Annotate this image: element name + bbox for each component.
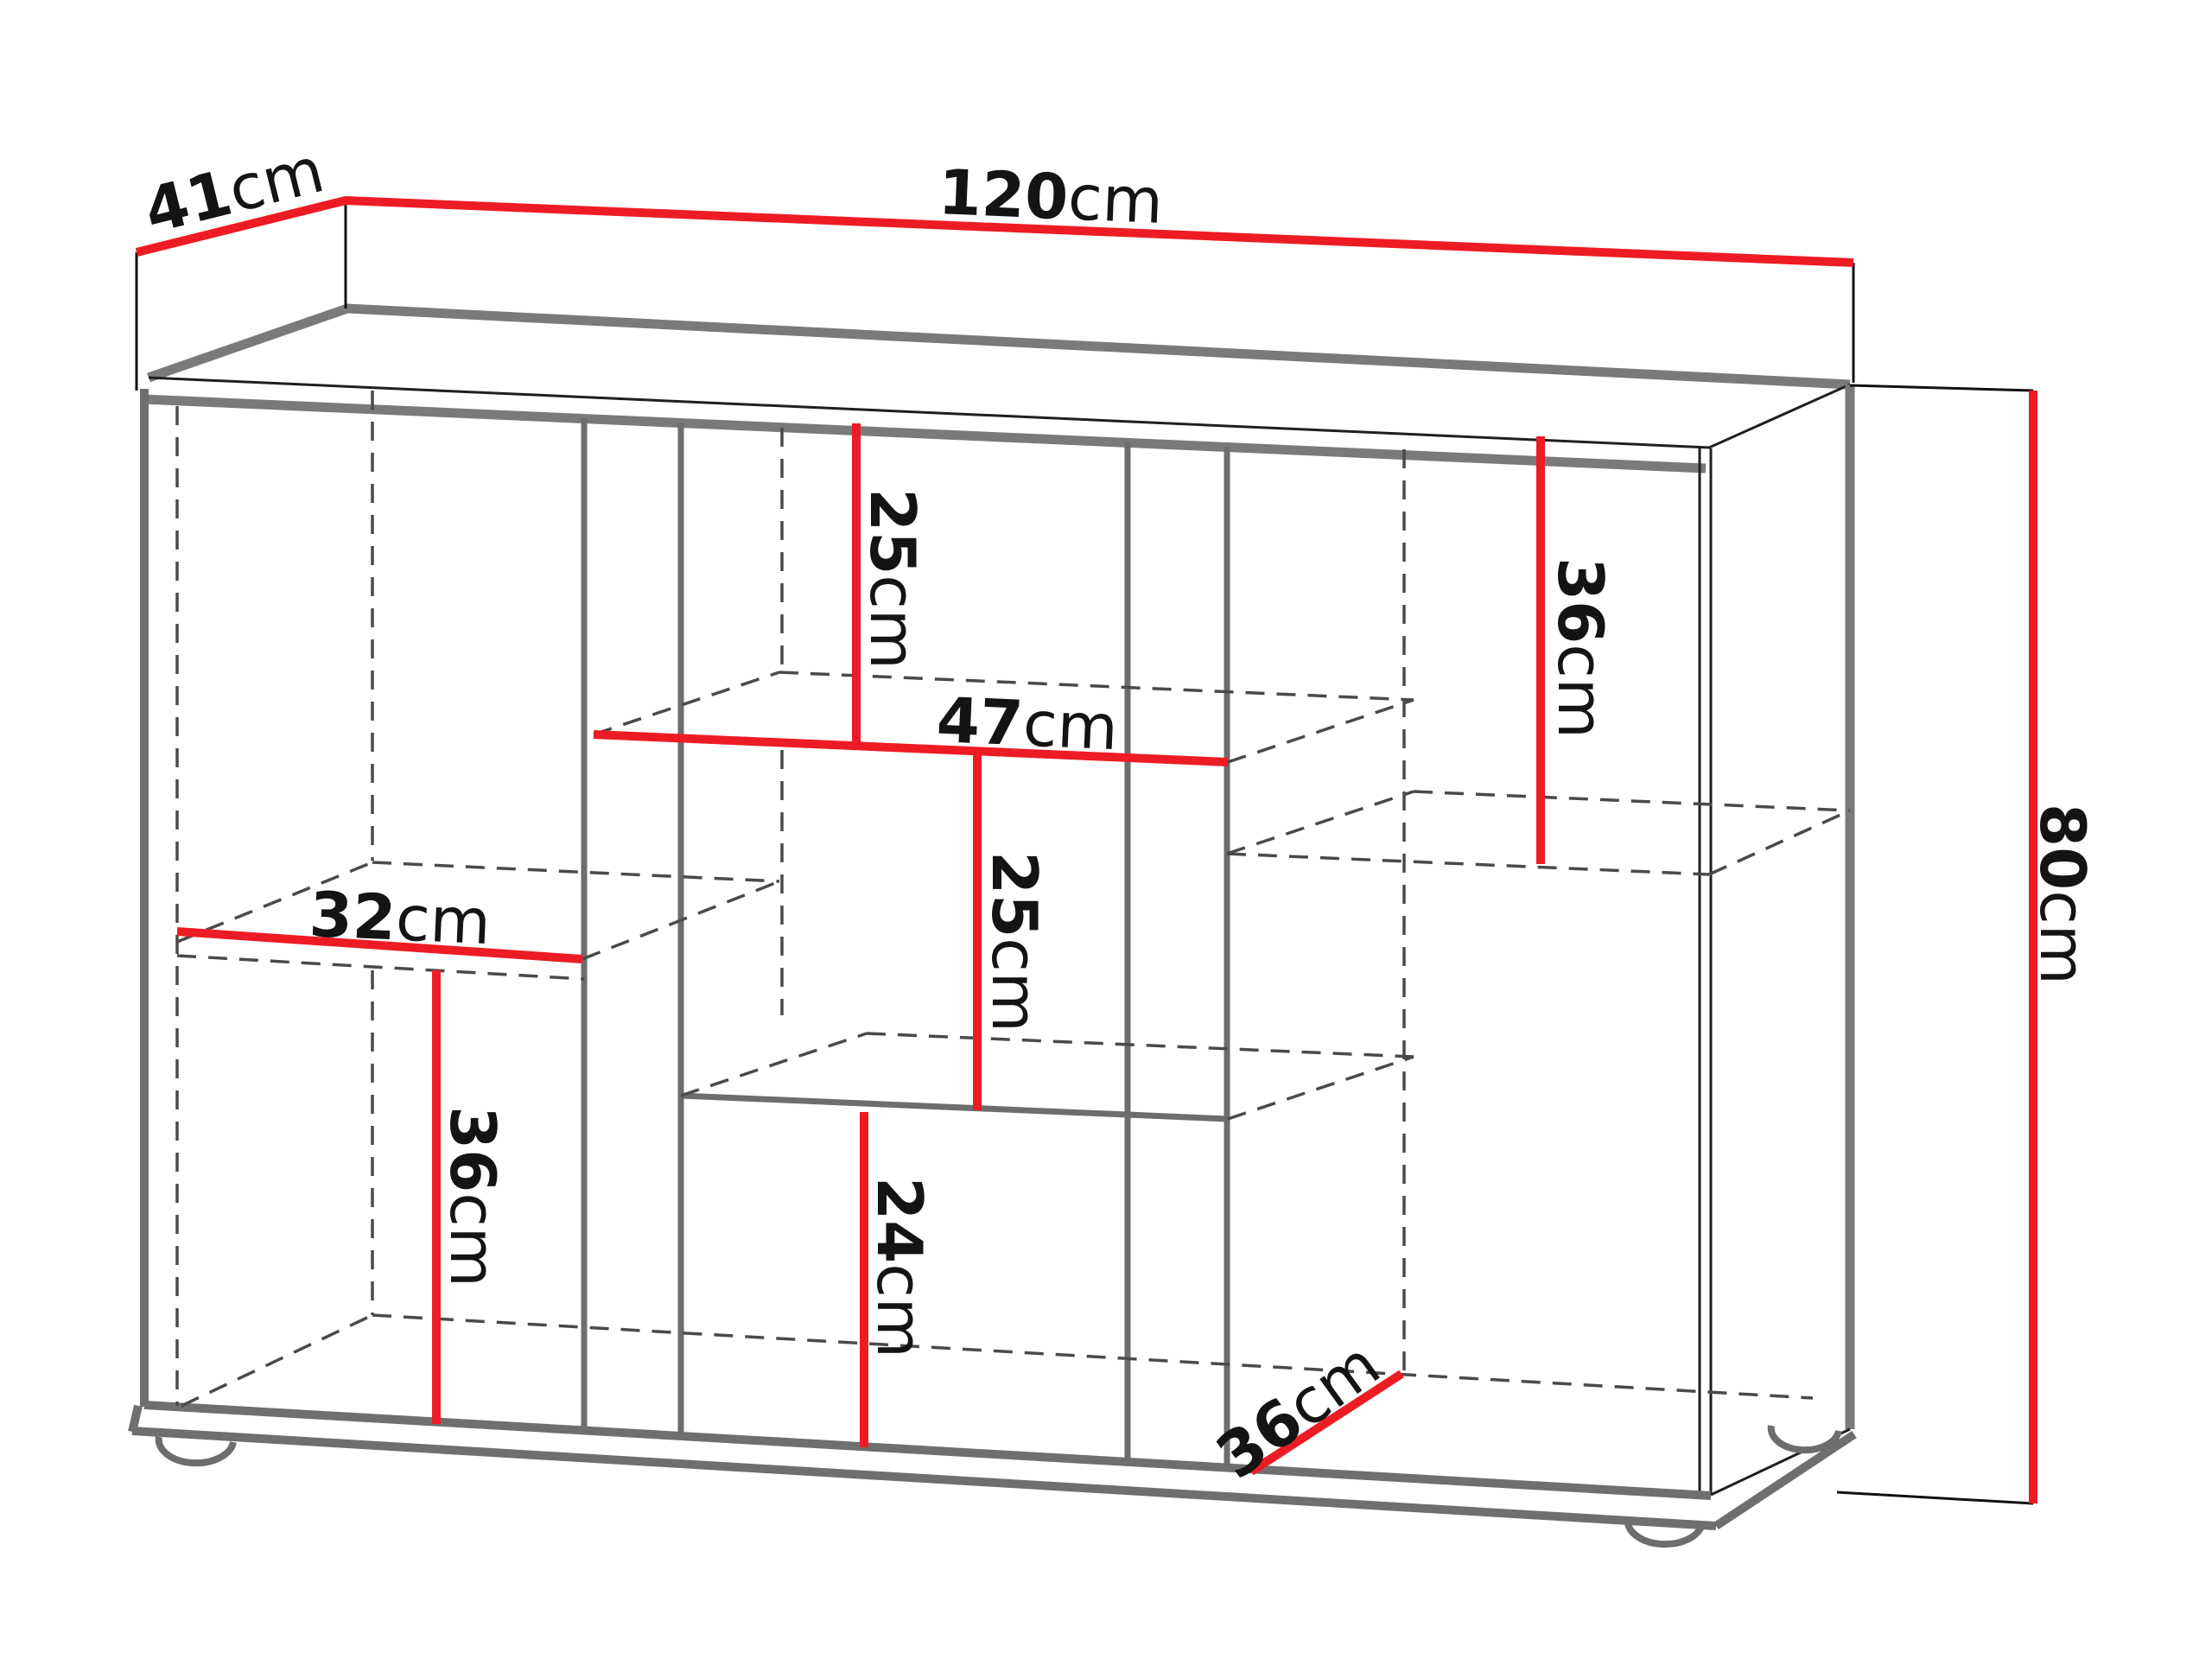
middle-upper-shelf-left-diagonal xyxy=(594,672,779,734)
hidden-bottom-back-edge xyxy=(372,1315,1813,1398)
middle-lower-shelf-right-diagonal xyxy=(1228,1057,1414,1119)
left-shelf-back-edge xyxy=(372,862,779,881)
cabinet-plinth xyxy=(132,1406,1854,1526)
front-left-foot xyxy=(159,1437,233,1463)
svg-text:25cm: 25cm xyxy=(856,488,929,670)
cabinet-right-side xyxy=(1711,385,1850,1495)
svg-text:24cm: 24cm xyxy=(863,1177,936,1358)
svg-text:36cm: 36cm xyxy=(1544,557,1617,739)
right-shelf-right-diagonal xyxy=(1709,810,1850,874)
svg-text:25cm: 25cm xyxy=(978,851,1051,1033)
svg-text:47cm: 47cm xyxy=(935,683,1119,764)
diagram-canvas: 120cm 41cm 80cm 25cm 47cm 25cm 24cm 36cm… xyxy=(0,0,2212,1659)
svg-text:36cm: 36cm xyxy=(436,1106,509,1287)
dim-line-middle-width-47 xyxy=(594,734,1228,762)
middle-upper-shelf-right-diagonal xyxy=(1228,700,1414,762)
extension-height-top xyxy=(1850,385,2033,391)
dimension-label-left-gap: 36cm xyxy=(436,1106,509,1287)
dimension-label-middle-width: 47cm xyxy=(935,683,1119,764)
svg-text:120cm: 120cm xyxy=(937,156,1164,238)
dimension-label-width: 120cm xyxy=(937,156,1164,238)
dimension-label-bottom-middle-gap: 24cm xyxy=(863,1177,936,1358)
hidden-bottom-left-diagonal xyxy=(181,1315,372,1406)
cabinet-top-face xyxy=(143,308,1850,468)
svg-text:32cm: 32cm xyxy=(308,878,492,958)
dimension-label-left-shelf-width: 32cm xyxy=(308,878,492,958)
right-shelf-left-diagonal xyxy=(1227,791,1414,854)
svg-text:80cm: 80cm xyxy=(2026,804,2099,985)
middle-lower-shelf-outline xyxy=(681,1033,1414,1119)
extension-height-bottom xyxy=(1837,1492,2033,1503)
right-shelf-front-edge xyxy=(1227,854,1709,874)
dimension-label-right-gap: 36cm xyxy=(1544,557,1617,739)
plinth-left-cap xyxy=(132,1406,138,1432)
dimension-label-height: 80cm xyxy=(2026,804,2099,985)
right-shelf-back-edge xyxy=(1414,791,1850,810)
middle-lower-shelf-left-diagonal xyxy=(681,1033,867,1096)
top-slab-underside-edge xyxy=(143,399,1706,468)
extension-lines xyxy=(137,200,2033,1503)
middle-lower-shelf-front-edge xyxy=(681,1096,1228,1119)
middle-lower-shelf-back-edge xyxy=(867,1033,1414,1057)
dimension-label-middle-gap: 25cm xyxy=(978,851,1051,1033)
furniture-dimension-diagram: 120cm 41cm 80cm 25cm 47cm 25cm 24cm 36cm… xyxy=(0,0,2212,1659)
dimension-label-top-middle-gap: 25cm xyxy=(856,488,929,670)
top-face-back-left-edge xyxy=(149,308,1850,385)
dimension-lines xyxy=(137,200,2033,1503)
dimension-labels: 120cm 41cm 80cm 25cm 47cm 25cm 24cm 36cm… xyxy=(137,133,2099,1493)
